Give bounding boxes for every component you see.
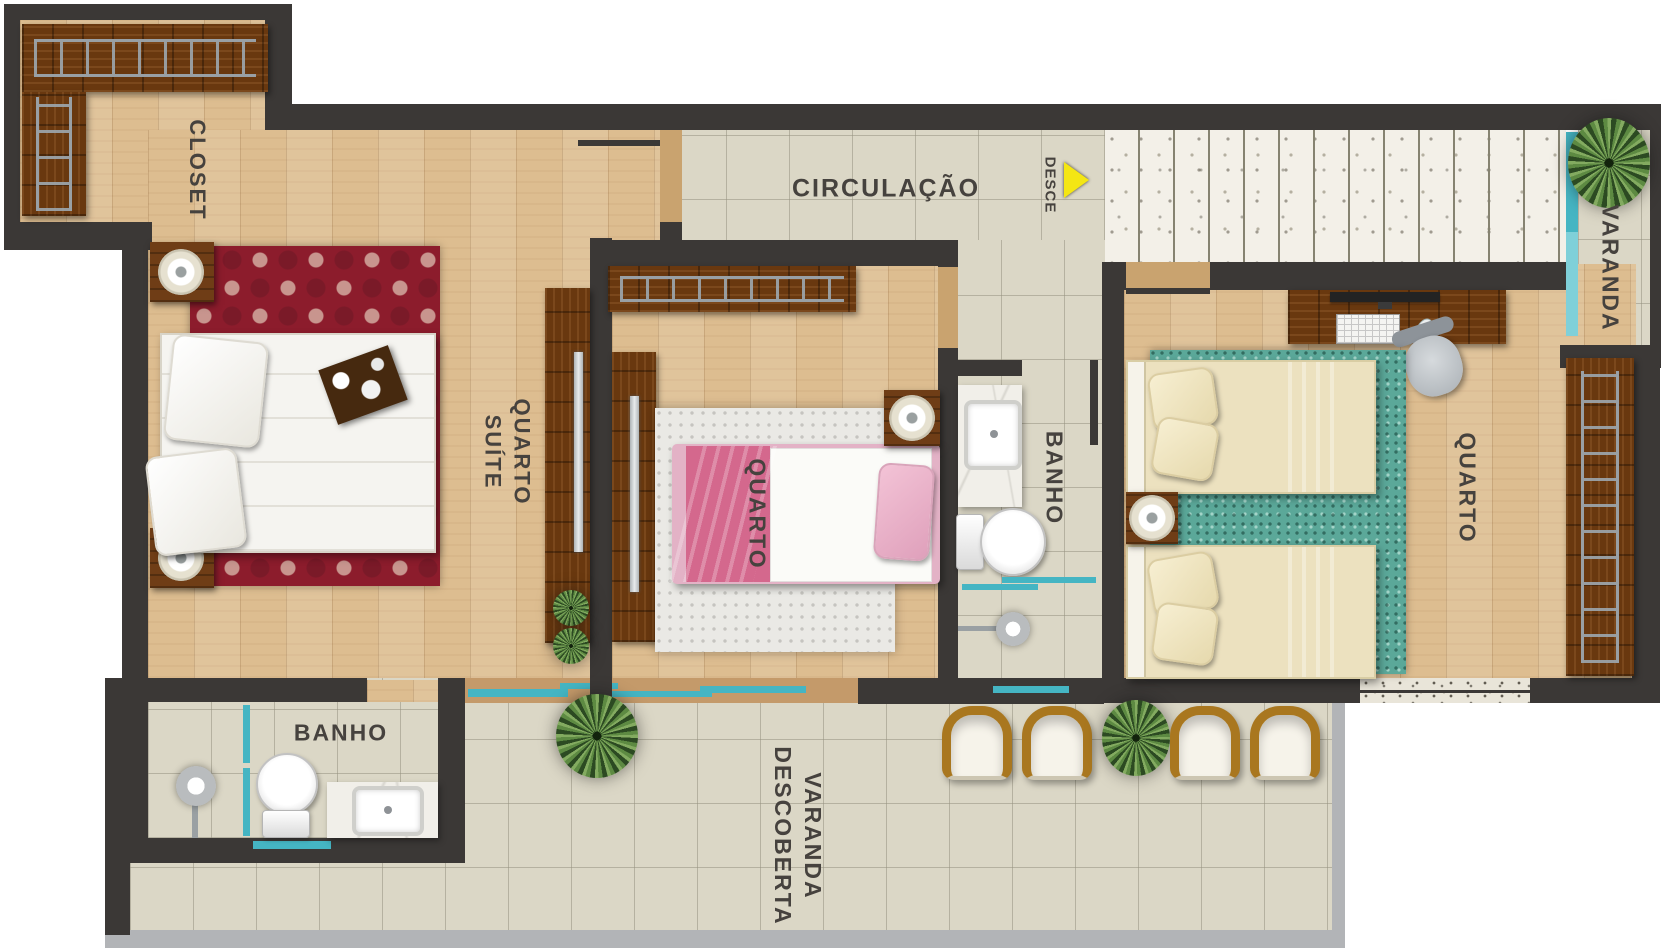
right-bedroom-door-opening	[1126, 262, 1210, 290]
wall	[958, 360, 1022, 376]
table-lamp	[889, 395, 935, 441]
blanket-folds	[1288, 547, 1334, 677]
monitor-stand	[1378, 302, 1392, 309]
wall	[130, 678, 367, 702]
headboard	[1128, 547, 1146, 677]
window-glass	[993, 686, 1069, 693]
headboard	[1128, 362, 1146, 492]
stairs-label-desce: DESCE	[1042, 157, 1059, 214]
hanging-rail	[34, 39, 255, 77]
left-bathroom-window-glass	[253, 841, 331, 849]
wall	[4, 4, 20, 248]
room-label-varanda-descoberta: VARANDA DESCOBERTA	[767, 746, 827, 925]
wall	[265, 104, 1656, 130]
wall	[105, 678, 130, 935]
wall	[438, 678, 465, 863]
terrace-bottom-edge	[105, 930, 1345, 948]
balcony-window-glass	[1566, 232, 1578, 336]
middle-bedroom-door-opening	[938, 267, 958, 348]
hanging-rail	[1581, 371, 1619, 664]
faucet	[990, 430, 998, 438]
blanket-folds	[1288, 362, 1334, 492]
bed-pillow	[873, 462, 936, 562]
terrace-plant	[556, 694, 638, 778]
bed-pillow	[163, 333, 270, 448]
wall	[1102, 262, 1126, 290]
middle-bedroom-wardrobe	[608, 266, 856, 312]
potted-plant	[553, 590, 589, 626]
toilet	[256, 753, 318, 815]
toilet	[980, 508, 1046, 576]
terrace-armchair	[1022, 706, 1092, 780]
room-label-quarto-middle: QUARTO	[744, 458, 771, 569]
shower-glass	[243, 705, 250, 763]
shower-glass	[962, 584, 1038, 590]
middle-bedroom-tv	[630, 396, 639, 592]
terrace-armchair	[1170, 706, 1240, 780]
floor-plan: CLOSET CIRCULAÇÃO DESCE VARANDA QUARTO S…	[0, 0, 1661, 950]
wall	[1102, 262, 1124, 680]
table-lamp	[158, 249, 204, 295]
balcony-plant	[1568, 118, 1650, 208]
bed-pillow	[144, 447, 248, 557]
room-label-quarto-suite-line1: QUARTO	[507, 399, 536, 506]
terrace-right-edge	[1332, 700, 1345, 948]
toilet-tank	[262, 810, 310, 838]
desce-arrow-icon	[1064, 162, 1089, 198]
bathroom-sink	[964, 400, 1022, 470]
terrace-armchair	[1250, 706, 1320, 780]
room-label-banho-left: BANHO	[294, 720, 388, 747]
room-label-circulacao: CIRCULAÇÃO	[792, 175, 980, 204]
room-label-varanda-descoberta-line2: DESCOBERTA	[767, 746, 797, 925]
shower-head	[996, 612, 1030, 646]
twin-bed	[1126, 360, 1376, 494]
bed-pillow	[1149, 415, 1220, 483]
closet-wardrobe-left	[22, 92, 86, 216]
window-glass	[608, 691, 712, 697]
left-bathroom-door-opening	[367, 680, 438, 702]
wall	[1210, 262, 1578, 290]
room-label-varanda: VARANDA	[1597, 204, 1624, 331]
table-lamp	[1129, 495, 1175, 541]
potted-plant	[553, 628, 589, 664]
room-label-quarto-suite: QUARTO SUÍTE	[478, 399, 535, 506]
room-label-banho-middle: BANHO	[1041, 431, 1068, 525]
window-glass	[700, 686, 806, 693]
shower-glass	[243, 768, 250, 836]
wall	[938, 348, 958, 680]
terrace-door-sill	[1360, 678, 1530, 703]
bed-pillow	[1150, 601, 1219, 667]
bathroom-sink	[352, 786, 424, 836]
right-bedroom-wardrobe	[1566, 358, 1634, 676]
middle-bedroom-door	[860, 260, 938, 266]
wall	[1530, 678, 1660, 703]
right-bedroom-door	[1126, 288, 1210, 294]
shower-glass	[1002, 577, 1096, 583]
wall	[938, 240, 958, 267]
terrace-plant	[1102, 700, 1170, 776]
room-label-quarto-right: QUARTO	[1454, 432, 1481, 543]
computer-monitor	[1330, 292, 1440, 302]
suite-tv	[574, 352, 583, 552]
faucet	[384, 806, 392, 814]
suite-door	[578, 140, 660, 146]
suite-door-opening	[660, 130, 682, 226]
room-label-quarto-suite-line2: SUÍTE	[478, 399, 507, 506]
staircase	[1105, 130, 1566, 262]
wall	[1632, 358, 1660, 703]
wall	[1090, 360, 1098, 445]
terrace-armchair	[942, 706, 1012, 780]
wall	[1650, 104, 1661, 358]
wall	[4, 4, 292, 20]
hanging-rail	[36, 97, 72, 211]
wall	[122, 222, 148, 702]
room-label-closet: CLOSET	[184, 119, 210, 220]
window-glass	[468, 689, 568, 697]
room-label-varanda-descoberta-line1: VARANDA	[797, 746, 827, 925]
shower-head	[176, 766, 216, 806]
closet-wardrobe-top	[22, 24, 268, 92]
wall	[1102, 678, 1360, 703]
hanging-rail	[620, 276, 843, 302]
twin-bed	[1126, 545, 1376, 679]
